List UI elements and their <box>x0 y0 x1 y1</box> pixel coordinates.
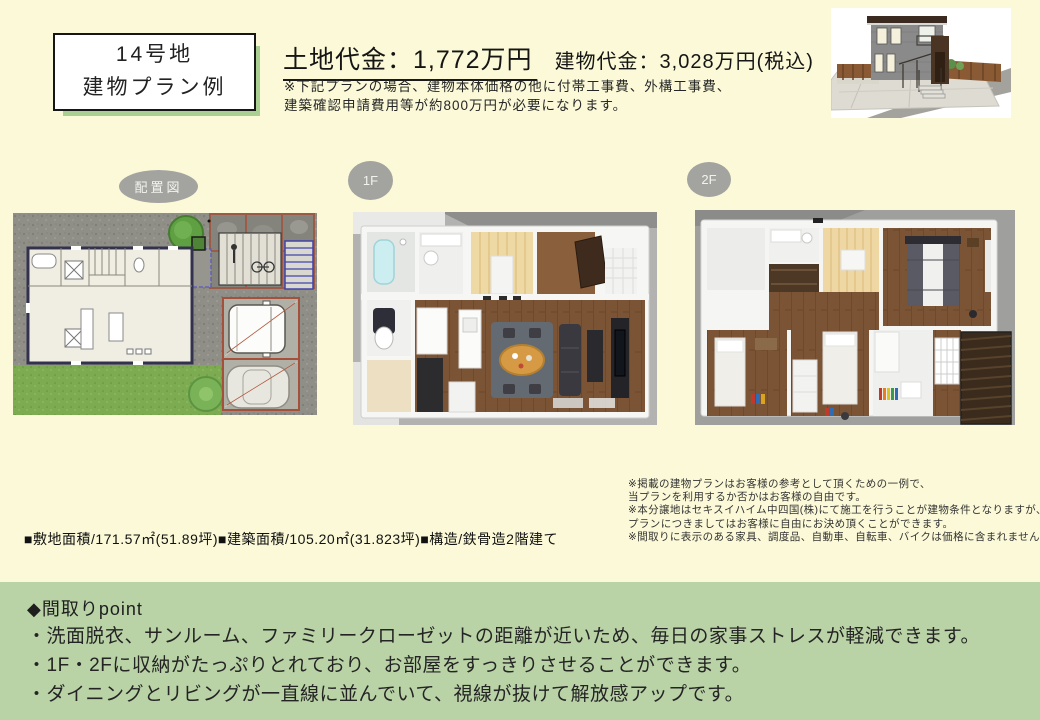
floor1-plan-illustration <box>353 212 657 425</box>
disclaimer-line: ※間取りに表示のある家具、調度品、自動車、自転車、バイクは価格に含まれません <box>628 531 1040 544</box>
toilet-room <box>367 300 411 356</box>
price-note-line1: ※下記プランの場合、建物本体価格の他に付帯工事費、外構工事費、 <box>284 77 731 96</box>
points-item: ・1F・2Fに収納がたっぷりとれており、お部屋をすっきりさせることができます。 <box>27 652 1040 679</box>
car-van <box>229 301 285 357</box>
layout-points-band: ◆間取りpoint ・洗面脱衣、サンルーム、ファミリークローゼットの距離が近いた… <box>0 582 1040 720</box>
lot-number: 14号地 <box>116 39 193 72</box>
disclaimer-line: 当プランを利用するか否かはお客様の自由です。 <box>628 491 1040 504</box>
bedroom-left <box>707 330 787 416</box>
land-price: 土地代金：1,772万円 <box>283 40 537 81</box>
price-note-line2: 建築確認申請費用等が約800万円が必要になります。 <box>284 96 731 115</box>
parking <box>223 298 299 410</box>
floor2-label: 2F <box>687 162 731 197</box>
price-notes: ※下記プランの場合、建物本体価格の他に付帯工事費、外構工事費、 建築確認申請費用… <box>284 77 731 115</box>
hall-2f <box>769 292 879 330</box>
bedroom-center <box>791 330 869 420</box>
hall-right <box>933 330 961 416</box>
house-rendering-illustration <box>831 8 1011 118</box>
free-room <box>873 330 933 416</box>
disclaimer-line: ※掲載の建物プランはお客様の参考として頂くための一例で、 <box>628 478 1040 491</box>
washroom <box>419 232 463 294</box>
walkin-closet <box>769 264 819 292</box>
tree-bottom <box>189 377 223 411</box>
points-item: ・洗面脱衣、サンルーム、ファミリークローゼットの距離が近いため、毎日の家事ストレ… <box>27 623 1040 650</box>
floor1-plan-image <box>353 212 657 425</box>
disclaimer-block: ※掲載の建物プランはお客様の参考として頂くための一例で、 当プランを利用するか否… <box>628 478 1040 544</box>
points-heading: ◆間取りpoint <box>27 595 1040 621</box>
specs-line: ■敷地面積/171.57㎡(51.89坪)■建築面積/105.20㎡(31.82… <box>24 529 558 549</box>
dining-set <box>491 322 553 398</box>
floor1-label: 1F <box>348 161 393 200</box>
points-item: ・ダイニングとリビングが一直線に並んでいて、視線が抜けて解放感アップです。 <box>27 681 1040 708</box>
storage-room <box>367 360 411 412</box>
house-footprint <box>26 246 192 365</box>
exterior-stairs <box>285 241 313 289</box>
master-bedroom <box>883 228 991 326</box>
door-track <box>813 218 823 223</box>
floor2-plan-illustration <box>695 210 1015 425</box>
room-top-left <box>707 228 765 290</box>
washroom-2f <box>769 228 819 262</box>
disclaimer-line: プランにつきましてはお客様に自由にお決め頂くことができます。 <box>628 518 1040 531</box>
balcony-louver <box>961 332 1011 424</box>
plan-example-label: 建物プラン例 <box>83 72 227 105</box>
site-plan-image <box>13 213 317 415</box>
exterior-rendering <box>831 8 1011 118</box>
stairs-2f <box>823 228 879 292</box>
title-box: 14号地 建物プラン例 <box>53 33 256 111</box>
disclaimer-line: ※本分譲地はセキスイハイム中四国(株)にて施工を行うことが建物条件となりますが、 <box>628 504 1040 517</box>
door-tracks <box>483 296 521 300</box>
building-price: 建物代金：3,028万円(税込) <box>555 45 814 74</box>
bathroom <box>367 232 415 292</box>
flyer-page: 14号地 建物プラン例 土地代金：1,772万円 建物代金：3,028万円(税込… <box>0 0 1040 720</box>
site-plan-label: 配置図 <box>119 170 198 203</box>
price-row: 土地代金：1,772万円 建物代金：3,028万円(税込) <box>283 40 814 81</box>
site-plan-illustration <box>13 213 317 415</box>
stairs <box>471 232 533 294</box>
porch-deck <box>219 233 281 285</box>
floor2-plan-image <box>695 210 1015 425</box>
